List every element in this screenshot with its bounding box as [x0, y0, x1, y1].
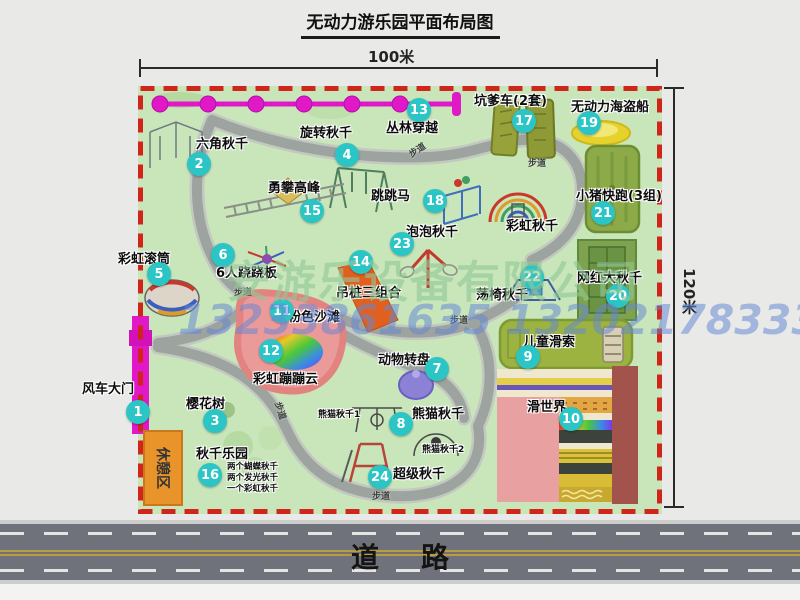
marker-3-cherry-tree[interactable]: 3: [203, 409, 227, 433]
marker-9-kids-zipline[interactable]: 9: [516, 345, 540, 369]
road-label: 道路: [0, 536, 800, 576]
label-swing-park-note-1: 两个蝴蝶秋千: [227, 462, 278, 473]
marker-23-bubble-swing[interactable]: 23: [390, 232, 414, 256]
dimension-tick-right-bottom: [664, 506, 684, 508]
marker-6-seesaw[interactable]: 6: [211, 243, 235, 267]
marker-4-rotating-swing[interactable]: 4: [335, 143, 359, 167]
marker-19-pirate-ship[interactable]: 19: [577, 111, 601, 135]
dimension-line-top: [140, 67, 658, 69]
label-rotating-swing: 旋转秋千: [300, 122, 352, 141]
label-panda-swing-1: 熊猫秋千1: [318, 407, 360, 420]
label-animal-turntable: 动物转盘: [378, 349, 430, 368]
marker-13-jungle-crossing[interactable]: 13: [407, 98, 431, 122]
label-swing-park: 秋千乐园: [196, 443, 248, 462]
marker-21-pig-run[interactable]: 21: [591, 201, 615, 225]
page-title: 无动力游乐园平面布局图: [0, 8, 800, 39]
road-lane-line-top: [0, 532, 800, 535]
label-swing-park-note-3: 一个彩虹秋千: [227, 484, 278, 495]
label-bubble-swing: 泡泡秋千: [406, 221, 458, 240]
marker-2-hexagon-swing[interactable]: 2: [187, 152, 211, 176]
label-pig-run: 小猪快跑(3组): [576, 185, 662, 204]
marker-11-pink-beach[interactable]: 11: [270, 299, 294, 323]
marker-18-jump-horse[interactable]: 18: [423, 189, 447, 213]
marker-12-bounce-cloud[interactable]: 12: [259, 339, 283, 363]
trail-label: 步道: [372, 489, 390, 502]
label-windmill-gate: 风车大门: [82, 378, 134, 397]
label-panda-swing-2: 熊猫秋千2: [422, 442, 464, 455]
marker-20-big-swing[interactable]: 20: [606, 284, 630, 308]
label-hexagon-swing: 六角秋千: [196, 133, 248, 152]
dimension-tick-right-top: [664, 87, 684, 89]
label-pit-cars: 坑爹车(2套): [474, 90, 547, 109]
label-bounce-cloud: 彩虹蹦蹦云: [253, 368, 318, 387]
marker-5-rainbow-roller[interactable]: 5: [147, 262, 171, 286]
label-super-swing: 超级秋千: [393, 463, 445, 482]
marker-17-pit-cars[interactable]: 17: [512, 109, 536, 133]
dimension-width-label: 100米: [368, 46, 414, 67]
road: 道路: [0, 520, 800, 584]
bottom-margin-strip: [0, 584, 800, 600]
marker-22-swing-chair[interactable]: 22: [520, 265, 544, 289]
marker-10-slide-world[interactable]: 10: [559, 407, 583, 431]
marker-14-hanging-piles[interactable]: 14: [349, 250, 373, 274]
marker-16-swing-park[interactable]: 16: [198, 463, 222, 487]
marker-15-climbing-peak[interactable]: 15: [300, 199, 324, 223]
label-pink-beach: 粉色沙滩: [288, 306, 340, 325]
dimension-tick-top-right: [656, 59, 658, 77]
rest-area-label: 休憩区: [153, 447, 173, 489]
dimension-height-label: 120米: [679, 268, 700, 314]
label-big-swing: 网红大秋千: [577, 267, 642, 286]
label-climbing-peak: 勇攀高峰: [268, 177, 320, 196]
trail-label: 步道: [528, 156, 546, 169]
label-hanging-piles: 吊桩三组合: [336, 282, 401, 301]
marker-24-super-swing[interactable]: 24: [368, 465, 392, 489]
park-layout-poster: 无动力游乐园平面布局图 100米 120米: [0, 0, 800, 600]
rest-area: 休憩区: [143, 430, 183, 506]
marker-1-windmill-gate[interactable]: 1: [126, 400, 150, 424]
dimension-tick-top-left: [139, 59, 141, 77]
label-rainbow-swing: 彩虹秋千: [506, 215, 558, 234]
marker-8-panda-swing[interactable]: 8: [389, 412, 413, 436]
label-panda-swing: 熊猫秋千: [412, 403, 464, 422]
label-swing-chair: 荡椅秋千: [476, 284, 528, 303]
marker-7-animal-turntable[interactable]: 7: [425, 357, 449, 381]
label-swing-park-note-2: 两个发光秋千: [227, 473, 278, 484]
label-jump-horse: 跳跳马: [371, 185, 410, 204]
trail-label: 步道: [234, 285, 252, 298]
trail-label: 步道: [450, 313, 468, 326]
dimension-line-right: [673, 88, 675, 508]
